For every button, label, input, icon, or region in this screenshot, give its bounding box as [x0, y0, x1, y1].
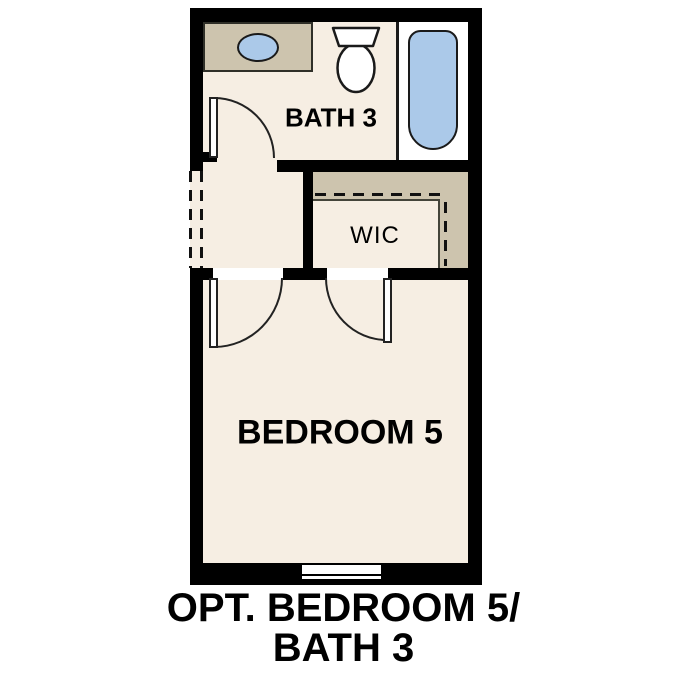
window-mullion	[302, 574, 381, 576]
bath-door-leaf	[209, 97, 218, 158]
sink-basin	[237, 33, 279, 62]
window	[300, 563, 383, 581]
bathtub	[408, 30, 458, 150]
hall-floor	[203, 160, 303, 268]
wic-room-label: WIC	[350, 222, 400, 250]
dashed-opening-inner-line	[200, 171, 203, 268]
plan-caption-line1: OPT. BEDROOM 5/	[0, 588, 687, 628]
closet-rod-horizontal	[315, 193, 444, 196]
plan-caption: OPT. BEDROOM 5/ BATH 3	[0, 588, 687, 668]
bedroom-door-leaf	[209, 278, 218, 348]
dashed-opening-outer-line	[189, 171, 192, 268]
bedroom-room-label: BEDROOM 5	[237, 414, 443, 453]
toilet-icon	[331, 26, 381, 94]
tub-niche-divider	[396, 22, 399, 160]
wall-hall-wic	[303, 160, 313, 280]
plan-caption-line2: BATH 3	[0, 628, 687, 668]
wall-right	[468, 8, 482, 585]
wic-door-leaf	[383, 278, 392, 343]
wall-bedroom-north-b	[283, 268, 327, 280]
wall-top	[190, 8, 482, 22]
bath-room-label: BATH 3	[285, 103, 377, 134]
wall-bedroom-north-c	[388, 268, 482, 280]
wall-left-lower	[190, 268, 203, 585]
floorplan-canvas: BATH 3 WIC BEDROOM 5 OPT. BEDROOM 5/ BAT…	[0, 0, 687, 687]
closet-rod-vertical	[444, 202, 447, 266]
wall-left-upper	[190, 8, 203, 171]
